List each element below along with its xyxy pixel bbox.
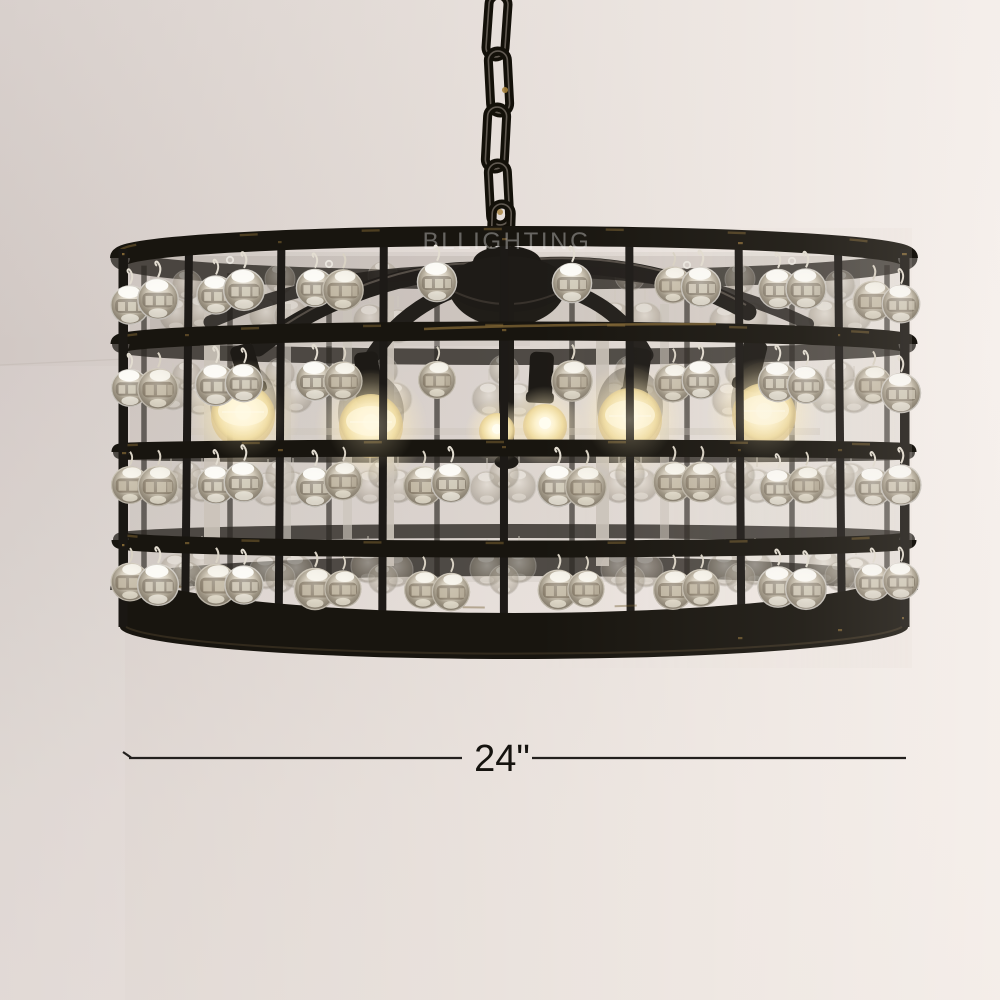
- svg-text:24": 24": [474, 738, 530, 780]
- svg-text:BLLIGHTING: BLLIGHTING: [423, 228, 592, 255]
